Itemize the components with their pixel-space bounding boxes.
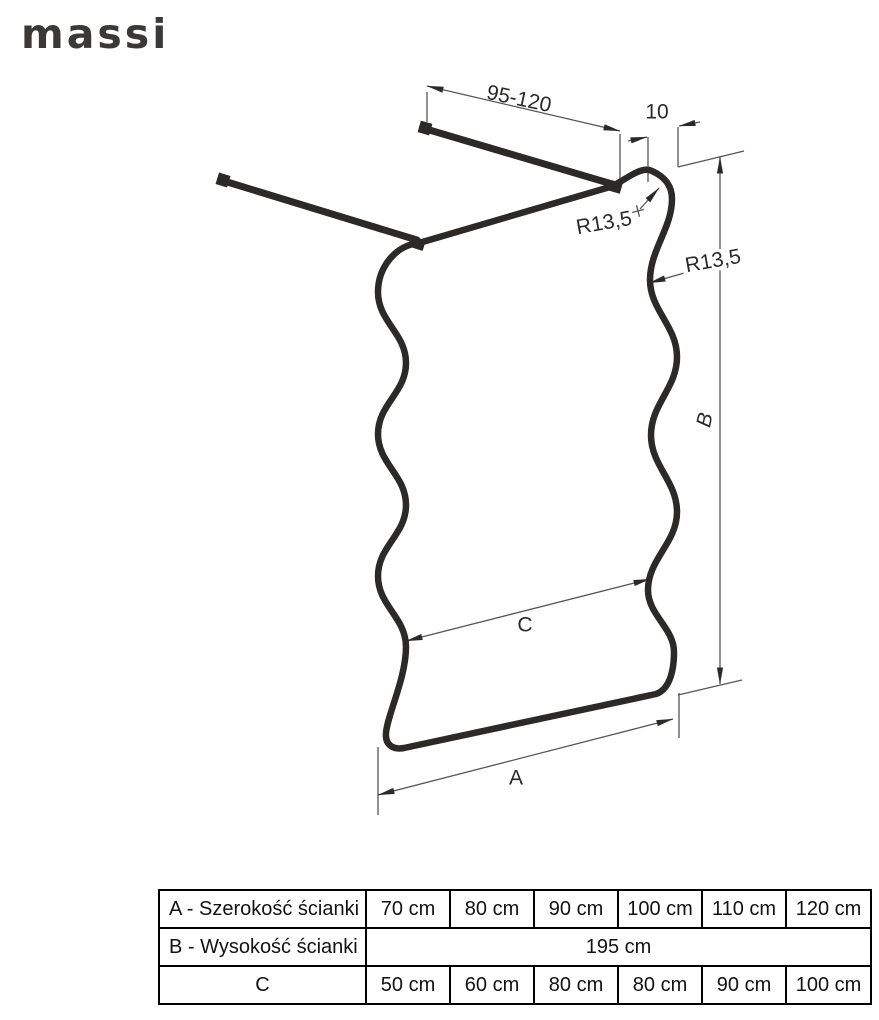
dim-label-c: C (517, 615, 532, 636)
leader-radius-side (649, 272, 688, 283)
row-b-value: 195 cm (366, 928, 871, 966)
technical-drawing (0, 0, 879, 1020)
table-row-a: A - Szerokość ścianki 70 cm 80 cm 90 cm … (159, 890, 871, 928)
leader-radius-top (640, 188, 659, 209)
support-bar-left (224, 181, 417, 240)
row-a-value: 80 cm (450, 890, 534, 928)
page: massi (0, 0, 879, 1020)
table-row-c: C 50 cm 60 cm 80 cm 80 cm 90 cm 100 cm (159, 966, 871, 1004)
row-a-value: 100 cm (618, 890, 702, 928)
row-a-label: A - Szerokość ścianki (159, 890, 366, 928)
dim-line-gap-right (679, 122, 700, 126)
size-table: A - Szerokość ścianki 70 cm 80 cm 90 cm … (158, 889, 872, 1005)
dim-label-a: A (509, 768, 523, 789)
row-c-value: 80 cm (618, 966, 702, 1004)
table-row-b: B - Wysokość ścianki 195 cm (159, 928, 871, 966)
row-a-value: 90 cm (534, 890, 618, 928)
row-c-value: 80 cm (534, 966, 618, 1004)
dim-label-gap: 10 (645, 102, 668, 123)
row-c-value: 100 cm (786, 966, 871, 1004)
ext-line (678, 680, 742, 695)
row-c-value: 60 cm (450, 966, 534, 1004)
dimension-lines (378, 86, 744, 815)
row-b-label: B - Wysokość ścianki (159, 928, 366, 966)
row-c-label: C (159, 966, 366, 1004)
row-a-value: 110 cm (702, 890, 786, 928)
row-a-value: 120 cm (786, 890, 871, 928)
row-c-value: 90 cm (702, 966, 786, 1004)
glass-panel (378, 170, 677, 749)
row-c-value: 50 cm (366, 966, 450, 1004)
ext-line (678, 151, 744, 167)
row-a-value: 70 cm (366, 890, 450, 928)
support-bar-top (426, 129, 612, 184)
mounting-brackets (216, 121, 623, 251)
dim-line-gap-left (628, 137, 647, 141)
dim-line-a (378, 719, 673, 795)
